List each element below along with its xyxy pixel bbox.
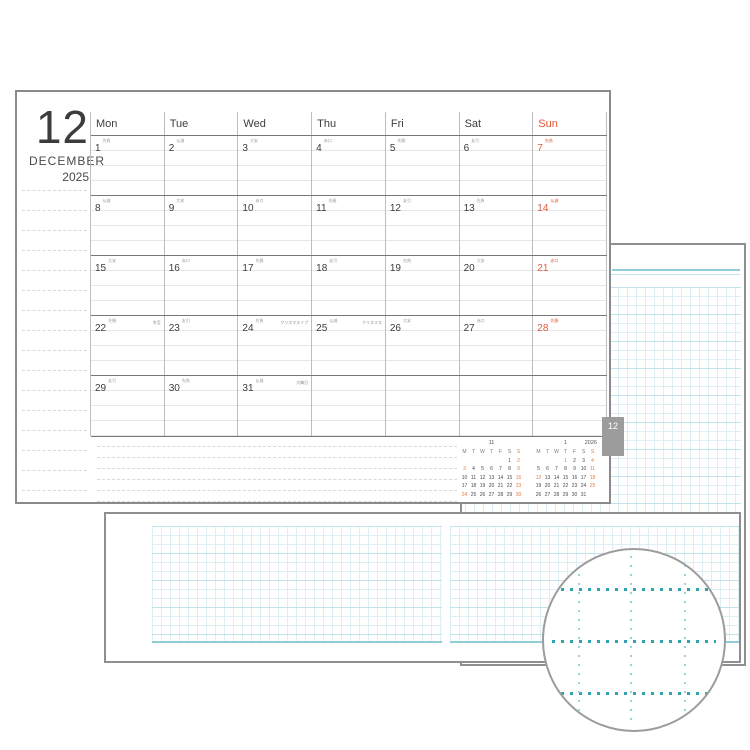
memo-line: [97, 446, 457, 447]
memo-line: [22, 390, 87, 391]
rokuyo-label: 仏滅: [103, 198, 111, 203]
rokuyo-label: 友引: [403, 198, 411, 203]
memo-line: [97, 468, 457, 469]
mini-date: 2: [514, 457, 523, 466]
day-cell: 21赤口: [533, 256, 607, 315]
mini-date: 19: [534, 482, 543, 491]
month-tab-label: 12: [608, 421, 618, 431]
rokuyo-label: 先勝: [108, 318, 116, 323]
date-number: 12: [390, 203, 401, 214]
weekday-header-fri: Fri: [386, 112, 460, 135]
mini-date: 10: [460, 474, 469, 483]
mini-weekday-header: T: [543, 448, 552, 457]
day-cell: 5先勝: [386, 136, 460, 195]
weekday-header-mon: Mon: [91, 112, 165, 135]
mini-date: 8: [505, 465, 514, 474]
mini-date: 16: [570, 474, 579, 483]
year-label: 2025: [29, 170, 89, 184]
date-number: 9: [169, 203, 175, 214]
mini-date: 24: [579, 482, 588, 491]
mini-date: [543, 457, 552, 466]
mini-date: 30: [514, 491, 523, 500]
mini-date: [487, 457, 496, 466]
mini-date: 3: [460, 465, 469, 474]
mini-date: 21: [496, 482, 505, 491]
memo-line: [22, 450, 87, 451]
date-number: 6: [464, 143, 470, 154]
date-number: 27: [464, 323, 475, 334]
mini-date: 1: [505, 457, 514, 466]
mini-date: 15: [505, 474, 514, 483]
rokuyo-label: 先負: [403, 258, 411, 263]
mini-date: 5: [534, 465, 543, 474]
memo-line: [22, 290, 87, 291]
date-number: 31: [242, 383, 253, 394]
mini-date: 11: [469, 474, 478, 483]
mini-date: 9: [514, 465, 523, 474]
memo-line: [22, 430, 87, 431]
mini-weekday-header: S: [588, 448, 597, 457]
calendar-weeks: 1先負2仏滅3大安4赤口5先勝6友引7先負8仏滅9大安10赤口11先勝12友引1…: [91, 136, 607, 437]
day-cell: 12友引: [386, 196, 460, 255]
memo-lines-left: [22, 190, 87, 502]
notes-page-headline-rule: [612, 269, 740, 271]
mini-date: 17: [460, 482, 469, 491]
date-number: 2: [169, 143, 175, 154]
rokuyo-label: 赤口: [182, 258, 190, 263]
memo-line: [22, 350, 87, 351]
mini-date: 27: [543, 491, 552, 500]
mini-date: [552, 457, 561, 466]
rokuyo-label: 友引: [329, 258, 337, 263]
day-cell: 24先負クリスマスイブ: [238, 316, 312, 375]
weekday-header-row: MonTueWedThuFriSatSun: [91, 112, 607, 136]
date-number: 16: [169, 263, 180, 274]
week-row: 15大安16赤口17先勝18友引19先負20大安21赤口: [91, 256, 607, 316]
mini-date: 28: [496, 491, 505, 500]
weekday-header-sat: Sat: [460, 112, 534, 135]
rokuyo-label: 赤口: [550, 258, 558, 263]
date-number: 11: [316, 203, 326, 214]
memo-line: [22, 270, 87, 271]
day-note: 大晦日: [296, 380, 308, 386]
memo-line: [22, 210, 87, 211]
memo-line: [22, 190, 87, 191]
mini-date: 18: [469, 482, 478, 491]
calendar-grid: MonTueWedThuFriSatSun 1先負2仏滅3大安4赤口5先勝6友引…: [90, 112, 607, 436]
mini-date: 26: [534, 491, 543, 500]
month-name: DECEMBER: [29, 154, 89, 168]
magnified-dotted-column: [578, 556, 580, 724]
day-cell: 25仏滅クリスマス: [312, 316, 386, 375]
day-cell: 26大安: [386, 316, 460, 375]
mini-weekday-header: F: [496, 448, 505, 457]
day-cell: 20大安: [460, 256, 534, 315]
memo-line: [22, 310, 87, 311]
memo-line: [22, 370, 87, 371]
day-cell: 8仏滅: [91, 196, 165, 255]
day-cell: 6友引: [460, 136, 534, 195]
mini-calendar-november: 11MTWTFSS1234567891011121314151617181920…: [460, 440, 523, 500]
mini-date: [588, 491, 597, 500]
mini-date: 27: [487, 491, 496, 500]
mini-weekday-header: T: [469, 448, 478, 457]
rokuyo-label: 先勝: [397, 138, 405, 143]
mini-date: 25: [588, 482, 597, 491]
magnified-dotted-line: [552, 588, 716, 591]
rokuyo-label: 先負: [477, 198, 485, 203]
mini-month-number: 11: [489, 440, 495, 446]
date-number: 10: [242, 203, 253, 214]
mini-date: 29: [561, 491, 570, 500]
rokuyo-label: 先負: [182, 378, 190, 383]
day-note: 冬至: [153, 320, 161, 326]
mini-date: 5: [478, 465, 487, 474]
date-number: 19: [390, 263, 401, 274]
mini-date: 18: [588, 474, 597, 483]
mini-date: 22: [505, 482, 514, 491]
month-title-block: 12 DECEMBER 2025: [29, 104, 89, 184]
rokuyo-label: 先負: [545, 138, 553, 143]
mini-date: 20: [543, 482, 552, 491]
day-cell: 9大安: [165, 196, 239, 255]
rokuyo-label: 友引: [182, 318, 190, 323]
mini-date: 7: [496, 465, 505, 474]
day-cell: [460, 376, 534, 436]
week-row: 8仏滅9大安10赤口11先勝12友引13先負14仏滅: [91, 196, 607, 256]
date-number: 26: [390, 323, 401, 334]
mini-date: 15: [561, 474, 570, 483]
mini-date: [478, 457, 487, 466]
day-cell: 23友引: [165, 316, 239, 375]
date-number: 5: [390, 143, 396, 154]
mini-date: 22: [561, 482, 570, 491]
date-number: 24: [242, 323, 253, 334]
rokuyo-label: 大安: [108, 258, 116, 263]
rokuyo-label: 赤口: [256, 198, 264, 203]
day-cell: 4赤口: [312, 136, 386, 195]
mini-date: 9: [570, 465, 579, 474]
memo-line: [22, 250, 87, 251]
mini-date: 10: [579, 465, 588, 474]
day-cell: 17先勝: [238, 256, 312, 315]
mini-weekday-header: T: [487, 448, 496, 457]
day-cell: 11先勝: [312, 196, 386, 255]
day-note: クリスマスイブ: [280, 320, 308, 326]
memo-line: [22, 330, 87, 331]
memo-line: [22, 490, 87, 491]
mini-date: [460, 457, 469, 466]
rokuyo-label: 仏滅: [176, 138, 184, 143]
date-number: 1: [95, 143, 101, 154]
day-cell: 14仏滅: [533, 196, 607, 255]
mini-date: 23: [570, 482, 579, 491]
memo-line: [22, 230, 87, 231]
mini-date: 2: [570, 457, 579, 466]
day-cell: 16赤口: [165, 256, 239, 315]
mini-date: 24: [460, 491, 469, 500]
rokuyo-label: 大安: [403, 318, 411, 323]
mini-calendar-january: 12026MTWTFSS1234567891011121314151617181…: [534, 440, 597, 500]
day-cell: 27赤口: [460, 316, 534, 375]
mini-weekday-header: S: [505, 448, 514, 457]
date-number: 13: [464, 203, 475, 214]
rokuyo-label: 仏滅: [256, 378, 264, 383]
date-number: 4: [316, 143, 322, 154]
mini-date: 17: [579, 474, 588, 483]
rokuyo-label: 友引: [471, 138, 479, 143]
rokuyo-label: 仏滅: [329, 318, 337, 323]
mini-date: 11: [588, 465, 597, 474]
mini-date: 1: [561, 457, 570, 466]
mini-date: 4: [469, 465, 478, 474]
mini-date: 16: [514, 474, 523, 483]
week-row: 29友引30先負31仏滅大晦日: [91, 376, 607, 437]
day-note: クリスマス: [362, 320, 382, 326]
memo-line: [22, 470, 87, 471]
date-number: 21: [537, 263, 548, 274]
date-number: 7: [537, 143, 543, 154]
day-cell: 7先負: [533, 136, 607, 195]
week-row: 22先勝冬至23友引24先負クリスマスイブ25仏滅クリスマス26大安27赤口28…: [91, 316, 607, 376]
mini-date: 29: [505, 491, 514, 500]
memo-line: [22, 410, 87, 411]
mini-date: [469, 457, 478, 466]
day-cell: 18友引: [312, 256, 386, 315]
mini-date: 13: [543, 474, 552, 483]
magnified-dotted-column: [630, 556, 632, 724]
day-cell: 3大安: [238, 136, 312, 195]
month-index-tab: 12: [602, 417, 624, 456]
rokuyo-label: 大安: [250, 138, 258, 143]
mini-weekday-header: M: [460, 448, 469, 457]
day-cell: [533, 376, 607, 436]
mini-date: 21: [552, 482, 561, 491]
weekday-header-sun: Sun: [533, 112, 607, 135]
day-cell: [386, 376, 460, 436]
mini-date: 20: [487, 482, 496, 491]
rokuyo-label: 友引: [108, 378, 116, 383]
date-number: 17: [242, 263, 253, 274]
mini-date: 12: [534, 474, 543, 483]
mini-date: 14: [552, 474, 561, 483]
mini-date: 6: [487, 465, 496, 474]
mini-date: 31: [579, 491, 588, 500]
date-number: 15: [95, 263, 106, 274]
magnified-dotted-line: [552, 640, 716, 643]
date-number: 28: [537, 323, 548, 334]
memo-line: [97, 490, 457, 491]
mini-date: [534, 457, 543, 466]
mini-date: 14: [496, 474, 505, 483]
day-cell: 30先負: [165, 376, 239, 436]
rokuyo-label: 先勝: [256, 258, 264, 263]
memo-lines-bottom: [97, 446, 457, 506]
mini-date: 7: [552, 465, 561, 474]
weekly-grid-block-left: [152, 526, 442, 643]
date-number: 20: [464, 263, 475, 274]
monthly-calendar-page: 12 DECEMBER 2025 MonTueWedThuFriSatSun 1…: [15, 90, 611, 504]
mini-calendar-grid: MTWTFSS123456789101112131415161718192021…: [460, 448, 523, 500]
date-number: 23: [169, 323, 180, 334]
mini-weekday-header: T: [561, 448, 570, 457]
magnified-dotted-column: [684, 556, 686, 724]
day-cell: 19先負: [386, 256, 460, 315]
mini-weekday-header: S: [514, 448, 523, 457]
magnifier-circle: [542, 548, 726, 732]
mini-date: [496, 457, 505, 466]
mini-year-label: 2026: [585, 440, 597, 447]
rokuyo-label: 先負: [256, 318, 264, 323]
mini-date: 23: [514, 482, 523, 491]
rokuyo-label: 赤口: [324, 138, 332, 143]
mini-calendar-grid: MTWTFSS123456789101112131415161718192021…: [534, 448, 597, 500]
mini-calendar-title: 11: [460, 440, 523, 448]
rokuyo-label: 先勝: [329, 198, 337, 203]
mini-date: 19: [478, 482, 487, 491]
mini-weekday-header: F: [570, 448, 579, 457]
day-cell: 10赤口: [238, 196, 312, 255]
day-cell: [312, 376, 386, 436]
date-number: 25: [316, 323, 327, 334]
rokuyo-label: 大安: [477, 258, 485, 263]
memo-line: [97, 457, 457, 458]
date-number: 3: [242, 143, 248, 154]
date-number: 22: [95, 323, 106, 334]
date-number: 29: [95, 383, 106, 394]
date-number: 18: [316, 263, 327, 274]
day-cell: 15大安: [91, 256, 165, 315]
mini-calendar-title: 12026: [534, 440, 597, 448]
mini-weekday-header: M: [534, 448, 543, 457]
mini-month-number: 1: [564, 440, 567, 446]
day-cell: 31仏滅大晦日: [238, 376, 312, 436]
mini-weekday-header: W: [478, 448, 487, 457]
date-number: 14: [537, 203, 548, 214]
rokuyo-label: 仏滅: [550, 198, 558, 203]
magnified-dotted-line: [552, 692, 716, 695]
mini-date: 12: [478, 474, 487, 483]
mini-date: 6: [543, 465, 552, 474]
day-cell: 29友引: [91, 376, 165, 436]
day-cell: 22先勝冬至: [91, 316, 165, 375]
mini-date: 28: [552, 491, 561, 500]
date-number: 8: [95, 203, 101, 214]
mini-weekday-header: S: [579, 448, 588, 457]
weekday-header-tue: Tue: [165, 112, 239, 135]
mini-date: 8: [561, 465, 570, 474]
rokuyo-label: 先勝: [550, 318, 558, 323]
date-number: 30: [169, 383, 180, 394]
mini-weekday-header: W: [552, 448, 561, 457]
memo-line: [97, 479, 457, 480]
day-cell: 2仏滅: [165, 136, 239, 195]
memo-line: [97, 501, 457, 502]
mini-date: 30: [570, 491, 579, 500]
weekday-header-wed: Wed: [238, 112, 312, 135]
day-cell: 13先負: [460, 196, 534, 255]
weekday-header-thu: Thu: [312, 112, 386, 135]
week-row: 1先負2仏滅3大安4赤口5先勝6友引7先負: [91, 136, 607, 196]
rokuyo-label: 大安: [176, 198, 184, 203]
day-cell: 28先勝: [533, 316, 607, 375]
mini-date: 26: [478, 491, 487, 500]
mini-date: 13: [487, 474, 496, 483]
mini-date: 4: [588, 457, 597, 466]
month-number: 12: [29, 104, 89, 150]
rokuyo-label: 赤口: [477, 318, 485, 323]
rokuyo-label: 先負: [103, 138, 111, 143]
mini-date: 3: [579, 457, 588, 466]
mini-date: 25: [469, 491, 478, 500]
day-cell: 1先負: [91, 136, 165, 195]
